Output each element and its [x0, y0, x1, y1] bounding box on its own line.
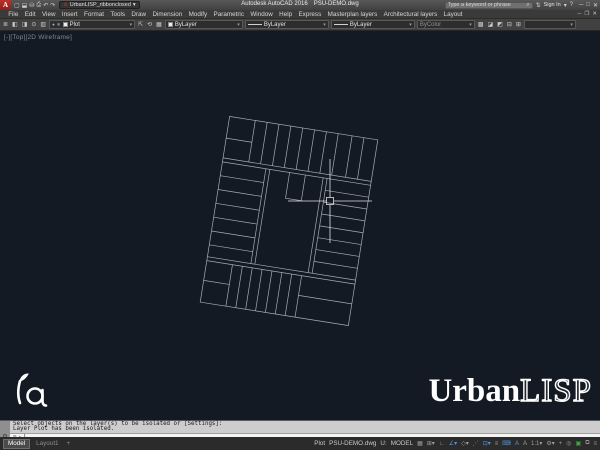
plotstyle-control-dropdown[interactable]: ByColor ▾	[417, 20, 475, 29]
snap-icon[interactable]: ⊞▾	[427, 440, 435, 447]
app-title: Autodesk AutoCAD 2016 PSU-DEMO.dwg	[241, 1, 358, 7]
clean-screen-icon[interactable]: ⧉	[585, 440, 589, 447]
graphics-performance-icon[interactable]: ▣	[576, 440, 582, 447]
status-file-name: PSU-DEMO.dwg	[329, 440, 376, 447]
close-button[interactable]: ✕	[593, 2, 598, 9]
open-icon[interactable]: ⬓	[22, 2, 28, 9]
menu-express[interactable]: Express	[295, 11, 324, 18]
chevron-down-icon: ▾	[469, 22, 472, 28]
linetype-sample	[248, 24, 262, 25]
doc-minimize-button[interactable]: ─	[578, 11, 582, 17]
lineweight-sample	[334, 24, 348, 25]
menu-layout[interactable]: Layout	[440, 11, 465, 18]
layers-properties-toolbar: ≣ ◧ ◨ ⊙ ▥ ● ❄ Plot ▾ ⇱ ⟲ ▦ ByLayer ▾ ByL…	[0, 19, 600, 31]
search-input[interactable]	[448, 2, 527, 8]
new-icon[interactable]: ▢	[14, 2, 20, 9]
grid-icon[interactable]: ▦	[417, 440, 423, 447]
status-bar: Model Layout1 + Plot PSU-DEMO.dwg U: MOD…	[0, 437, 600, 450]
layer-on-icon: ●	[52, 22, 55, 27]
current-layer-name: Plot	[70, 22, 80, 28]
workspace-gear-icon: ⚙	[63, 2, 67, 8]
workspace-gear-icon[interactable]: ⚙▾	[546, 440, 554, 447]
menu-format[interactable]: Format	[81, 11, 107, 18]
properties-a-icon[interactable]: ◪	[486, 21, 494, 28]
parcel-drawing	[0, 31, 600, 420]
menu-dimension[interactable]: Dimension	[149, 11, 185, 18]
current-lineweight: ByLayer	[350, 22, 372, 28]
layer-unisolate-icon[interactable]: ◨	[21, 21, 29, 28]
sign-in-button[interactable]: Sign In	[544, 2, 561, 8]
dynamic-input-icon[interactable]: ⌨	[502, 440, 511, 447]
menu-modify[interactable]: Modify	[185, 11, 210, 18]
object-snap-tracking-icon[interactable]: ⋰	[473, 440, 479, 447]
make-object-layer-current-icon[interactable]: ⇱	[137, 21, 144, 28]
match-properties-icon[interactable]: ▩	[477, 21, 485, 28]
isolate-objects-icon[interactable]: ◎	[566, 440, 571, 447]
menu-architectural-layers[interactable]: Architectural layers	[380, 11, 440, 18]
layer-freeze-icon[interactable]: ⊙	[30, 21, 37, 28]
text-style-dropdown[interactable]: ▾	[524, 20, 576, 29]
undo-icon[interactable]: ↶	[43, 2, 48, 9]
title-bar: A ▢ ⬓ ⛁ ⎙ ↶ ↷ ⚙ UrbanLISP_ribbonclosed ▾…	[0, 0, 600, 10]
current-color: ByLayer	[175, 22, 197, 28]
workspace-switcher[interactable]: ⚙ UrbanLISP_ribbonclosed ▾	[59, 1, 139, 9]
menu-file[interactable]: File	[5, 11, 22, 18]
exchange-apps-icon[interactable]: ⇅	[536, 2, 541, 9]
status-layer-name: Plot	[314, 440, 325, 447]
autoscale-icon[interactable]: A	[523, 441, 527, 447]
plot-icon[interactable]: ⎙	[36, 2, 41, 9]
menu-parametric[interactable]: Parametric	[210, 11, 247, 18]
chevron-down-icon: ▾	[237, 22, 240, 28]
annotation-scale-button[interactable]: 1:1▾	[531, 440, 542, 447]
urbanlisp-wordmark: UrbanLISP	[428, 375, 592, 408]
lineweight-control-dropdown[interactable]: ByLayer ▾	[331, 20, 415, 29]
properties-d-icon[interactable]: ⊞	[515, 21, 522, 28]
minimize-button[interactable]: ─	[579, 2, 583, 9]
color-control-dropdown[interactable]: ByLayer ▾	[165, 20, 243, 29]
menu-masterplan-layers[interactable]: Masterplan layers	[324, 11, 380, 18]
chevron-down-icon: ▾	[130, 22, 133, 28]
autocad-logo-icon[interactable]: A	[0, 0, 11, 10]
command-history: Select objects on the layer(s) to be iso…	[10, 421, 600, 433]
quick-access-toolbar: ▢ ⬓ ⛁ ⎙ ↶ ↷	[14, 2, 55, 9]
redo-icon[interactable]: ↷	[50, 2, 55, 9]
color-swatch	[168, 22, 173, 27]
layer-control-dropdown[interactable]: ● ❄ Plot ▾	[49, 20, 135, 29]
menu-view[interactable]: View	[39, 11, 59, 18]
brand-solid-text: Urban	[428, 373, 520, 409]
tab-layout1[interactable]: Layout1	[32, 439, 62, 449]
save-icon[interactable]: ⛁	[29, 2, 34, 9]
linetype-control-dropdown[interactable]: ByLayer ▾	[245, 20, 329, 29]
new-layout-button[interactable]: +	[65, 440, 73, 447]
menu-window[interactable]: Window	[247, 11, 276, 18]
brand-outline-text: LISP	[520, 373, 592, 409]
layer-states-icon[interactable]: ▦	[155, 21, 163, 28]
menu-bar: File Edit View Insert Format Tools Draw …	[0, 10, 600, 19]
menu-tools[interactable]: Tools	[107, 11, 128, 18]
chevron-down-icon: ▾	[133, 2, 136, 8]
tab-model[interactable]: Model	[3, 439, 30, 449]
sign-in-caret-icon[interactable]: ▾	[564, 2, 567, 9]
search-icon[interactable]: ⌕	[526, 2, 529, 9]
layer-color-swatch	[63, 22, 68, 27]
annotation-visibility-icon[interactable]: A	[515, 441, 519, 447]
model-space-button[interactable]: MODEL	[391, 440, 413, 447]
isodraft-icon[interactable]: ◇▾	[461, 440, 469, 447]
layer-properties-manager-icon[interactable]: ≣	[2, 21, 9, 28]
current-linetype: ByLayer	[264, 22, 286, 28]
current-plotstyle: ByColor	[420, 22, 441, 28]
workspace-label: UrbanLISP_ribbonclosed	[70, 2, 131, 8]
doc-close-button[interactable]: ✕	[592, 11, 597, 17]
properties-c-icon[interactable]: ⊟	[506, 21, 513, 28]
layer-thaw-icon: ❄	[57, 22, 61, 28]
help-icon[interactable]: ?	[570, 2, 573, 8]
object-snap-icon[interactable]: ⊡▾	[483, 440, 491, 447]
help-search-box[interactable]: ⌕	[445, 2, 533, 9]
layer-off-icon[interactable]: ▥	[39, 21, 47, 28]
status-ucs-label: U:	[380, 440, 386, 447]
chevron-down-icon: ▾	[570, 22, 573, 28]
chevron-down-icon: ▾	[323, 22, 326, 28]
model-space-canvas[interactable]: [-][Top][2D Wireframe]	[0, 31, 600, 420]
menu-insert[interactable]: Insert	[59, 11, 81, 18]
lineweight-icon[interactable]: ≡	[495, 441, 499, 447]
menu-edit[interactable]: Edit	[22, 11, 39, 18]
customization-icon[interactable]: ≡	[593, 441, 597, 447]
properties-b-icon[interactable]: ◩	[496, 21, 504, 28]
menu-draw[interactable]: Draw	[128, 11, 149, 18]
layer-isolate-icon[interactable]: ◧	[11, 21, 19, 28]
polar-tracking-icon[interactable]: ∠▾	[449, 440, 457, 447]
ortho-icon[interactable]: ∟	[439, 441, 445, 447]
urbanlisp-logo-icon	[8, 370, 54, 410]
crosshair-cursor	[288, 159, 372, 243]
layout-tabs: Model Layout1 +	[3, 439, 72, 449]
chevron-down-icon: ▾	[409, 22, 412, 28]
layer-previous-icon[interactable]: ⟲	[146, 21, 153, 28]
annotation-monitor-icon[interactable]: +	[559, 441, 563, 447]
doc-restore-button[interactable]: ❐	[584, 11, 589, 17]
menu-help[interactable]: Help	[276, 11, 295, 18]
command-line-panel: ⚙ Select objects on the layer(s) to be i…	[0, 420, 600, 437]
maximize-button[interactable]: □	[586, 2, 590, 9]
